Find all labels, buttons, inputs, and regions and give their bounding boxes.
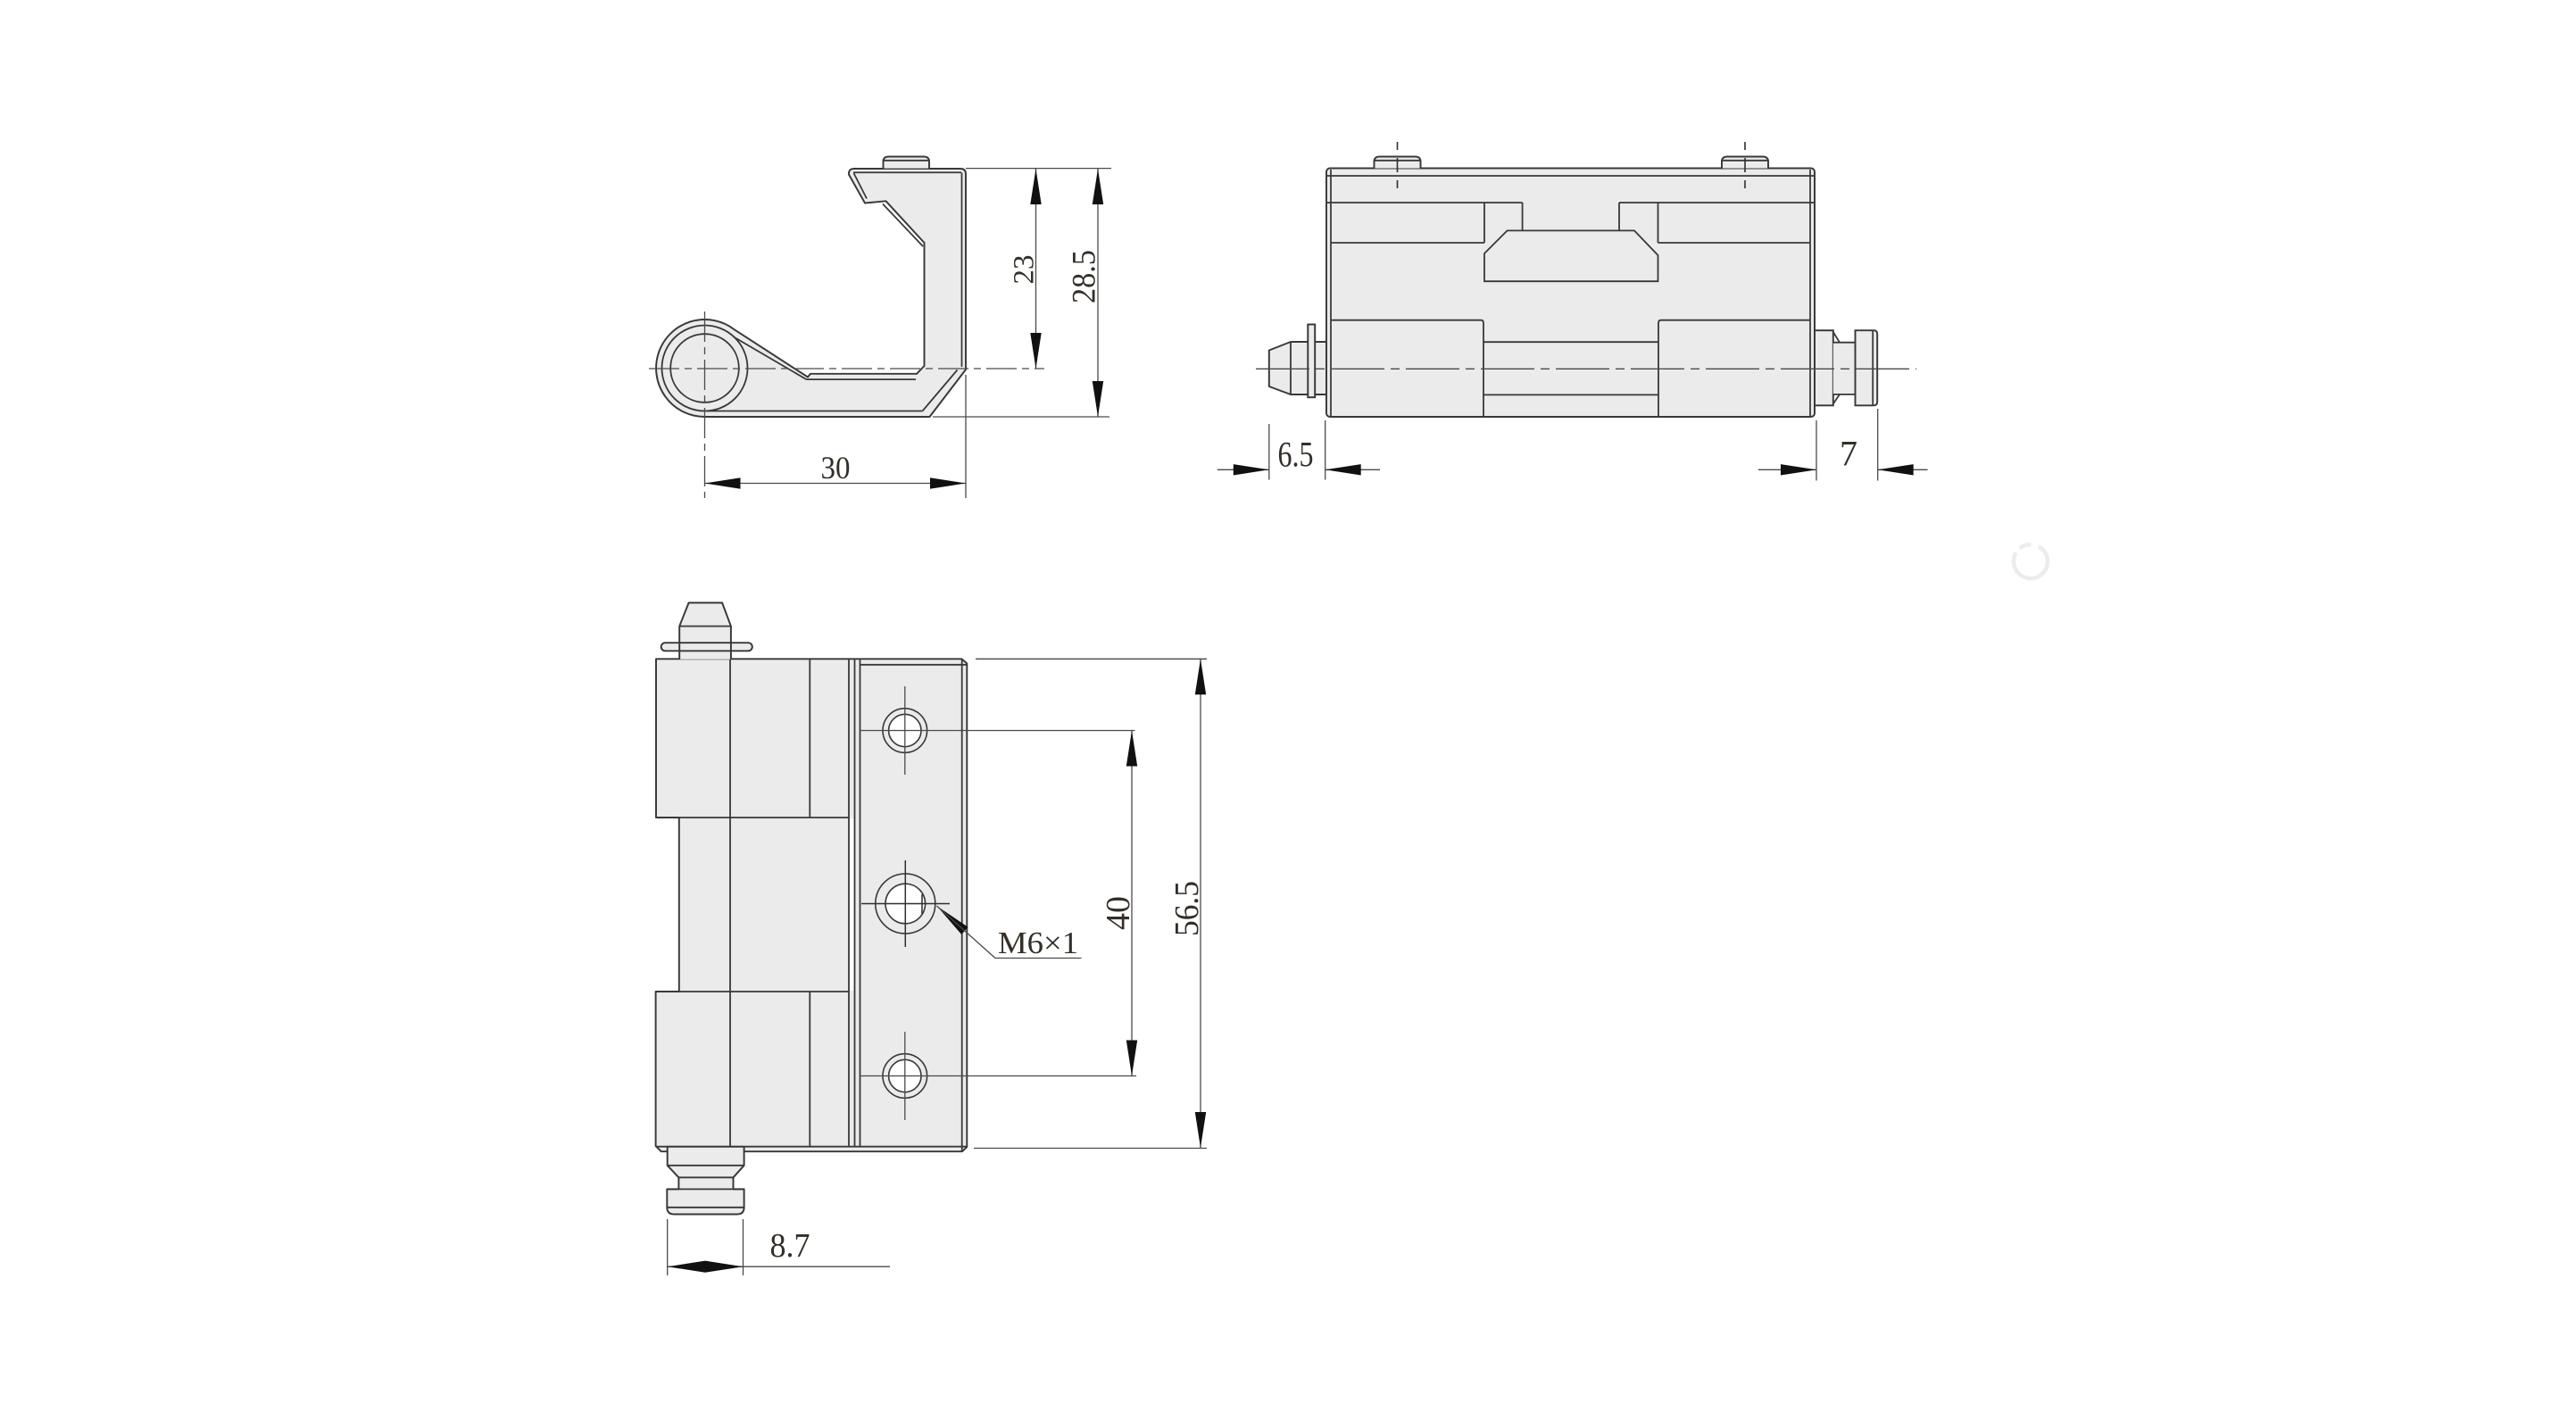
svg-text:30: 30 [821,450,851,486]
svg-text:56.5: 56.5 [1168,881,1206,936]
svg-text:40: 40 [1100,896,1137,930]
svg-text:8.7: 8.7 [770,1227,810,1265]
svg-text:23: 23 [1009,255,1041,285]
svg-text:M6×1: M6×1 [998,926,1078,960]
svg-text:6.5: 6.5 [1278,435,1314,475]
svg-text:7: 7 [1840,434,1857,474]
svg-text:28.5: 28.5 [1067,250,1103,303]
